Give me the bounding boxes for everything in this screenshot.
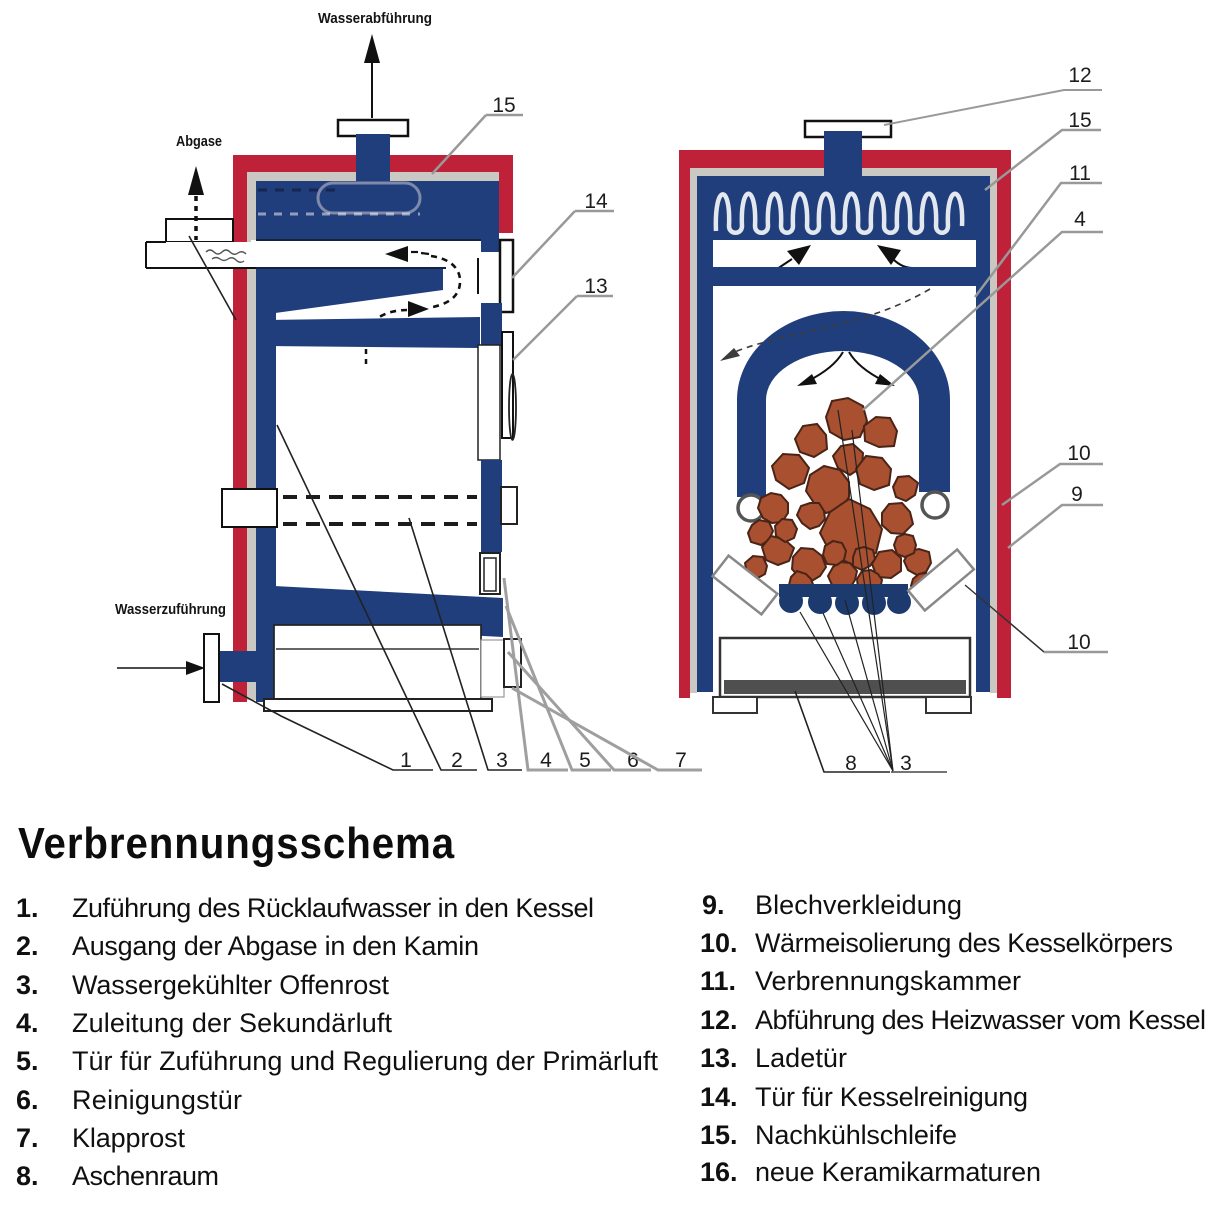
svg-text:Wasserzuführung: Wasserzuführung — [115, 601, 226, 618]
svg-text:12: 12 — [1068, 64, 1091, 87]
svg-text:4: 4 — [540, 749, 552, 772]
svg-text:Tür für Kesselreinigung: Tür für Kesselreinigung — [755, 1082, 1028, 1112]
svg-text:Verbrennungsschema: Verbrennungsschema — [18, 819, 455, 868]
svg-text:Ladetür: Ladetür — [755, 1043, 847, 1073]
svg-text:Verbrennungskammer: Verbrennungskammer — [755, 966, 1021, 996]
svg-text:Abgase: Abgase — [176, 133, 222, 150]
svg-text:neue Keramikarmaturen: neue Keramikarmaturen — [755, 1157, 1041, 1187]
svg-text:9: 9 — [1071, 483, 1083, 506]
svg-text:7.: 7. — [16, 1123, 39, 1153]
svg-text:15: 15 — [1068, 109, 1091, 132]
svg-text:3: 3 — [900, 752, 912, 775]
svg-text:Zuleitung der Sekundärluft: Zuleitung der Sekundärluft — [72, 1008, 392, 1038]
svg-text:Wärmeisolierung des Kesselkörp: Wärmeisolierung des Kesselkörpers — [755, 928, 1173, 958]
svg-text:15: 15 — [492, 94, 515, 117]
svg-text:11.: 11. — [700, 966, 736, 996]
svg-text:8.: 8. — [16, 1161, 39, 1191]
svg-text:12.: 12. — [700, 1005, 738, 1035]
svg-text:4.: 4. — [16, 1008, 39, 1038]
svg-text:14: 14 — [584, 190, 608, 213]
svg-text:3: 3 — [496, 749, 508, 772]
svg-text:15.: 15. — [700, 1120, 738, 1150]
svg-text:Wasserabführung: Wasserabführung — [318, 10, 432, 27]
svg-text:Blechverkleidung: Blechverkleidung — [755, 890, 962, 920]
svg-text:5: 5 — [579, 749, 591, 772]
svg-text:1.: 1. — [16, 893, 39, 923]
svg-text:2: 2 — [451, 749, 463, 772]
svg-text:Tür für Zuführung und Regulier: Tür für Zuführung und Regulierung der Pr… — [72, 1046, 658, 1076]
svg-text:13.: 13. — [700, 1043, 738, 1073]
svg-text:3.: 3. — [16, 970, 39, 1000]
svg-text:Klapprost: Klapprost — [72, 1123, 185, 1153]
svg-text:Abführung des Heizwasser vom K: Abführung des Heizwasser vom Kessel — [755, 1005, 1206, 1035]
svg-text:13: 13 — [584, 275, 607, 298]
svg-text:Ausgang der Abgase in den Kami: Ausgang der Abgase in den Kamin — [72, 931, 479, 961]
svg-text:Aschenraum: Aschenraum — [72, 1161, 219, 1191]
svg-text:Nachkühlschleife: Nachkühlschleife — [755, 1120, 957, 1150]
svg-text:2.: 2. — [16, 931, 39, 961]
svg-text:6.: 6. — [16, 1085, 39, 1115]
svg-text:10: 10 — [1067, 631, 1090, 654]
svg-text:11: 11 — [1069, 162, 1091, 185]
svg-text:10.: 10. — [700, 928, 738, 958]
svg-text:4: 4 — [1074, 208, 1086, 231]
svg-text:1: 1 — [400, 749, 412, 772]
svg-text:7: 7 — [675, 749, 687, 772]
svg-text:9.: 9. — [702, 890, 725, 920]
svg-text:14.: 14. — [700, 1082, 738, 1112]
svg-text:8: 8 — [845, 752, 857, 775]
svg-text:5.: 5. — [16, 1046, 39, 1076]
svg-text:10: 10 — [1067, 442, 1090, 465]
svg-text:Zuführung des Rücklaufwasser i: Zuführung des Rücklaufwasser in den Kess… — [72, 893, 594, 923]
svg-text:Reinigungstür: Reinigungstür — [72, 1085, 242, 1115]
svg-text:16.: 16. — [700, 1157, 738, 1187]
svg-text:Wassergekühlter Offenrost: Wassergekühlter Offenrost — [72, 970, 389, 1000]
